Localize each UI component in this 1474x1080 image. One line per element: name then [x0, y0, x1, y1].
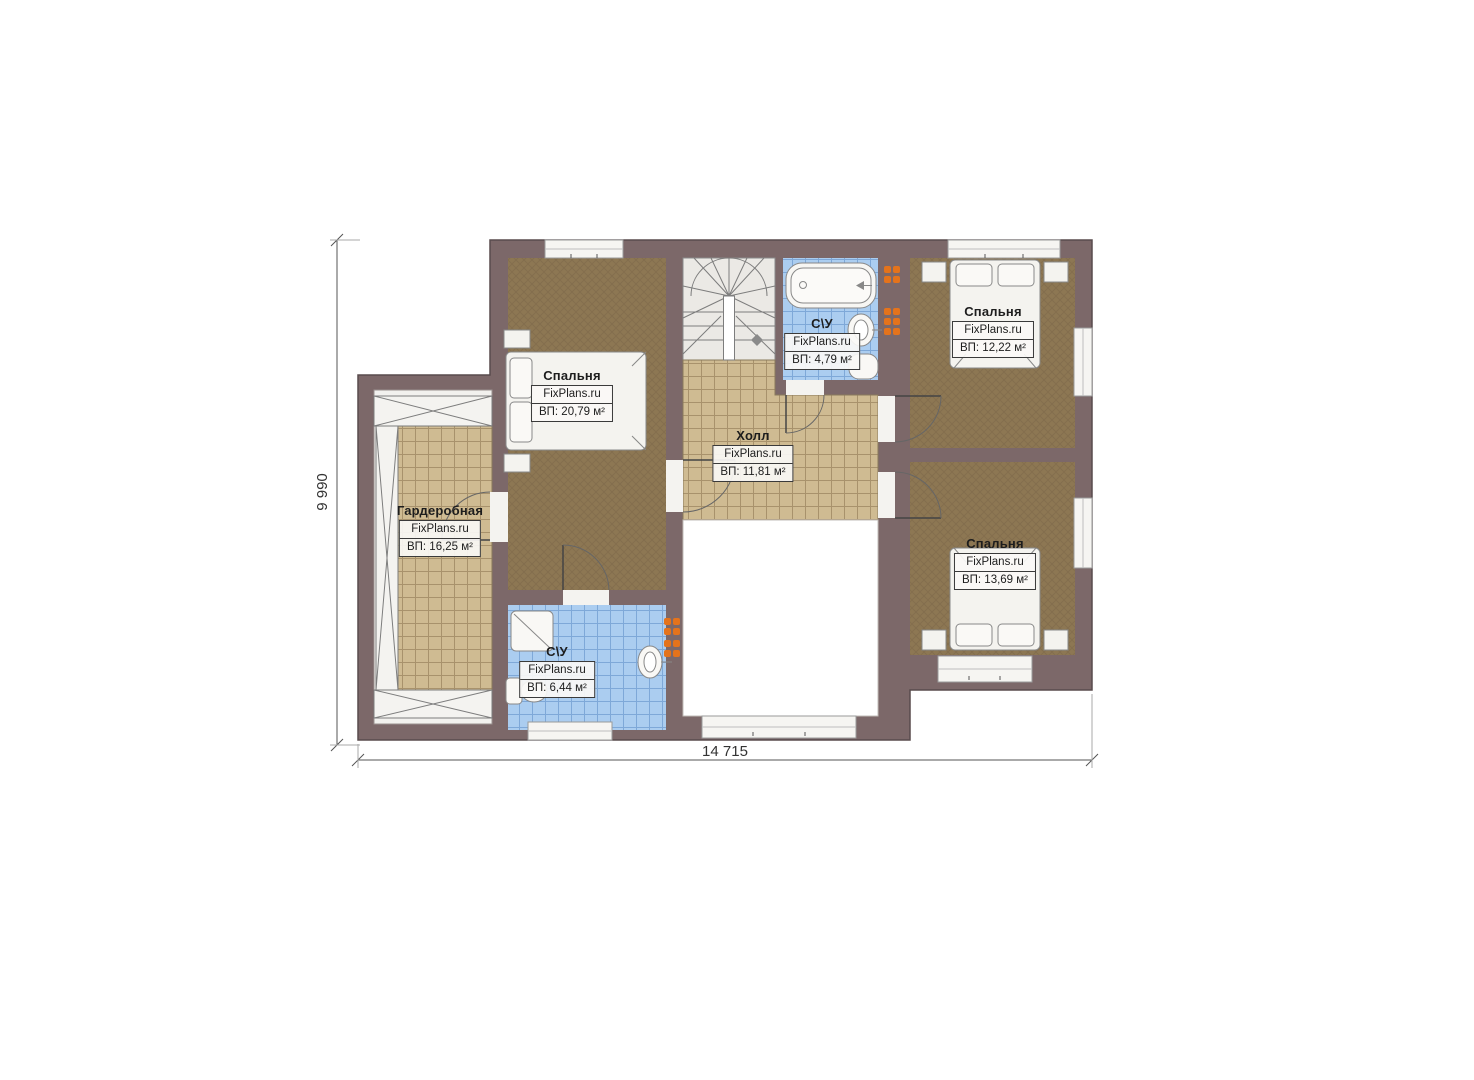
wardrobe-tile — [396, 424, 492, 690]
window-right-upper — [1074, 328, 1092, 396]
room-area: ВП: 16,25 м² — [400, 538, 480, 556]
room-brand: FixPlans.ru — [532, 386, 612, 403]
room-brand: FixPlans.ru — [520, 662, 594, 679]
floor-plan-canvas: 9 990 14 715 — [0, 0, 1474, 1080]
room-name: С\У — [784, 316, 860, 331]
room-brand: FixPlans.ru — [785, 334, 859, 351]
room-label-hall: Холл FixPlans.ru ВП: 11,81 м² — [712, 428, 793, 482]
room-info-box: FixPlans.ru ВП: 16,25 м² — [399, 520, 481, 557]
room-brand: FixPlans.ru — [713, 446, 792, 463]
room-area: ВП: 13,69 м² — [955, 571, 1035, 589]
room-label-wardrobe: Гардеробная FixPlans.ru ВП: 16,25 м² — [397, 503, 483, 557]
room-area: ВП: 12,22 м² — [953, 339, 1033, 357]
window-top-left — [545, 240, 623, 258]
room-area: ВП: 6,44 м² — [520, 679, 594, 697]
room-info-box: FixPlans.ru ВП: 6,44 м² — [519, 661, 595, 698]
dimension-width-label: 14 715 — [702, 743, 748, 760]
room-info-box: FixPlans.ru ВП: 4,79 м² — [784, 333, 860, 370]
room-name: С\У — [519, 644, 595, 659]
room-area: ВП: 4,79 м² — [785, 351, 859, 369]
room-brand: FixPlans.ru — [400, 521, 480, 538]
dimension-height-label: 9 990 — [314, 473, 331, 511]
room-label-bedroom-bottom-right: Спальня FixPlans.ru ВП: 13,69 м² — [954, 536, 1036, 590]
floor-plan-page: 9 990 14 715 Спальня FixPlans.ru ВП: 20,… — [0, 0, 1474, 1080]
room-brand: FixPlans.ru — [955, 554, 1035, 571]
window-bath-bottom — [528, 722, 612, 740]
room-info-box: FixPlans.ru ВП: 12,22 м² — [952, 321, 1034, 358]
room-brand: FixPlans.ru — [953, 322, 1033, 339]
bathtub-icon — [786, 263, 876, 308]
room-name: Холл — [712, 428, 793, 443]
room-label-bathroom-top: С\У FixPlans.ru ВП: 4,79 м² — [784, 316, 860, 370]
room-label-bedroom-left: Спальня FixPlans.ru ВП: 20,79 м² — [531, 368, 613, 422]
room-label-bathroom-bottom: С\У FixPlans.ru ВП: 6,44 м² — [519, 644, 595, 698]
room-name: Гардеробная — [397, 503, 483, 518]
window-wing-bottom — [938, 656, 1032, 682]
room-name: Спальня — [954, 536, 1036, 551]
window-right-lower — [1074, 498, 1092, 568]
void-floor — [683, 520, 878, 716]
window-top-right — [948, 240, 1060, 258]
room-label-bedroom-top-right: Спальня FixPlans.ru ВП: 12,22 м² — [952, 304, 1034, 358]
window-void-bottom — [702, 716, 856, 738]
room-area: ВП: 20,79 м² — [532, 403, 612, 421]
room-info-box: FixPlans.ru ВП: 11,81 м² — [712, 445, 793, 482]
room-info-box: FixPlans.ru ВП: 20,79 м² — [531, 385, 613, 422]
room-area: ВП: 11,81 м² — [713, 463, 792, 481]
room-name: Спальня — [952, 304, 1034, 319]
room-name: Спальня — [531, 368, 613, 383]
room-info-box: FixPlans.ru ВП: 13,69 м² — [954, 553, 1036, 590]
